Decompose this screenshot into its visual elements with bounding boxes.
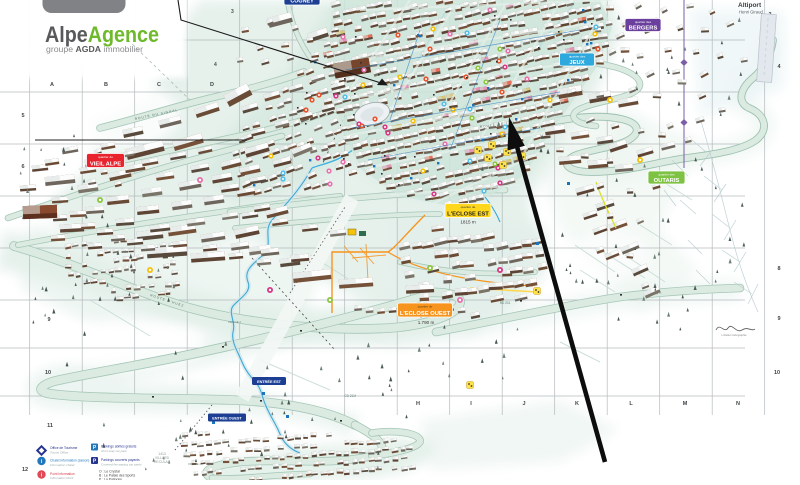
svg-text:12: 12 — [22, 467, 28, 473]
svg-text:H: H — [416, 401, 420, 407]
svg-text:L'ECLOSE EST: L'ECLOSE EST — [447, 211, 489, 217]
svg-text:Henri Giraud: Henri Giraud — [739, 10, 763, 15]
svg-text:L'ECLOSE OUEST: L'ECLOSE OUEST — [400, 311, 451, 317]
svg-text:L'Atelier Cartographie: L'Atelier Cartographie — [721, 333, 747, 337]
svg-text:A: A — [50, 82, 54, 88]
svg-text:Parkings couverts payants: Parkings couverts payants — [101, 458, 140, 462]
svg-text:9: 9 — [47, 317, 50, 323]
svg-text:groupe AGDA immobilier: groupe AGDA immobilier — [46, 45, 143, 54]
svg-text:J: J — [522, 401, 525, 407]
svg-text:JEUX: JEUX — [569, 60, 584, 66]
svg-text:CD 211f: CD 211f — [344, 394, 356, 398]
svg-text:Information Point: Information Point — [50, 476, 74, 480]
svg-text:OUTARIS: OUTARIS — [654, 178, 680, 184]
svg-text:quartier des: quartier des — [635, 20, 652, 24]
svg-text:ENTRÉE OUEST: ENTRÉE OUEST — [212, 416, 242, 421]
svg-text:VIEIL ALPE: VIEIL ALPE — [90, 161, 121, 167]
svg-text:Chalet information (saison): Chalet information (saison) — [50, 458, 89, 462]
svg-text:quartier de: quartier de — [461, 205, 476, 209]
svg-text:short-stay car park: short-stay car park — [101, 449, 127, 453]
svg-text:ENTRÉE EST: ENTRÉE EST — [257, 379, 282, 384]
svg-text:information chalet: information chalet — [50, 463, 75, 467]
svg-text:quartier des: quartier des — [658, 172, 675, 176]
svg-text:B: B — [104, 82, 108, 88]
svg-text:11: 11 — [47, 423, 53, 429]
svg-text:Parkings abrités gratuits: Parkings abrités gratuits — [101, 445, 137, 449]
svg-text:M: M — [683, 401, 688, 407]
svg-text:RECULAS: RECULAS — [154, 460, 171, 464]
svg-text:Covered fee-paying car parks: Covered fee-paying car parks — [101, 462, 142, 466]
svg-text:COGNEY: COGNEY — [290, 0, 314, 5]
svg-text:BERGERS: BERGERS — [629, 25, 658, 31]
svg-text:8: 8 — [777, 266, 780, 272]
svg-text:10: 10 — [774, 370, 780, 376]
svg-text:quartier de: quartier de — [418, 304, 433, 308]
svg-text:RD 211: RD 211 — [500, 301, 511, 305]
svg-text:VIRAGE 2: VIRAGE 2 — [228, 320, 241, 324]
svg-text:Office de Tourisme: Office de Tourisme — [50, 446, 78, 450]
svg-text:D: D — [210, 82, 214, 88]
svg-text:Tourist Office: Tourist Office — [50, 450, 68, 454]
svg-text:1815 m: 1815 m — [460, 220, 475, 225]
svg-text:6: 6 — [21, 164, 24, 170]
svg-text:quartier des: quartier des — [569, 54, 586, 58]
svg-text:3: 3 — [231, 9, 234, 15]
svg-text:4: 4 — [214, 62, 217, 68]
svg-text:9: 9 — [777, 316, 780, 322]
svg-text:VIRAGE 4: VIRAGE 4 — [188, 462, 201, 466]
svg-text:Altiport: Altiport — [738, 2, 762, 9]
svg-text:5: 5 — [21, 113, 24, 119]
svg-text:C: C — [157, 82, 161, 88]
svg-text:10: 10 — [45, 370, 51, 376]
svg-text:K: K — [575, 401, 579, 407]
svg-text:AlpeAgence: AlpeAgence — [45, 22, 159, 47]
svg-text:quartier du: quartier du — [98, 155, 113, 159]
svg-text:1.790 m: 1.790 m — [418, 320, 435, 325]
svg-text:N: N — [736, 401, 740, 407]
svg-text:Point information: Point information — [50, 472, 75, 476]
